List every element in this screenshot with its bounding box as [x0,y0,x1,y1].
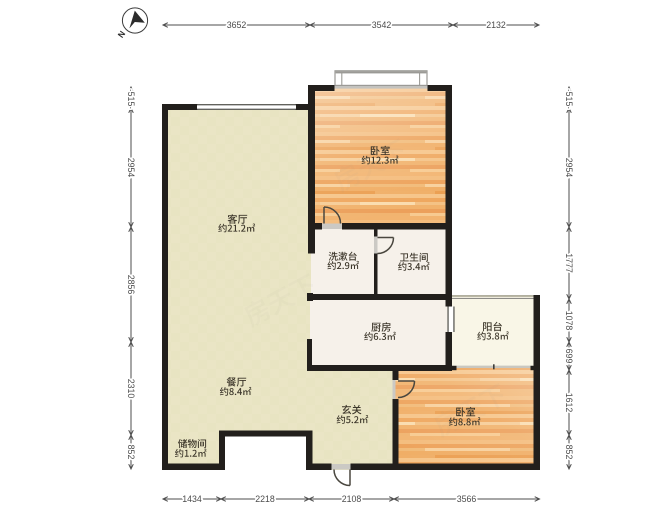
svg-text:1612: 1612 [564,393,574,413]
svg-text:·515·: ·515· [126,89,136,110]
svg-text:2132: 2132 [486,20,506,30]
svg-text:1078: 1078 [564,311,574,331]
svg-text:1777: 1777 [564,253,574,273]
svg-text:2954: 2954 [564,158,574,178]
svg-text:3566: 3566 [457,494,477,504]
svg-text:2954: 2954 [126,158,136,178]
svg-text:852: 852 [564,445,574,460]
svg-text:2108: 2108 [342,494,362,504]
svg-text:3542: 3542 [372,20,392,30]
svg-text:3652: 3652 [227,20,247,30]
svg-text:·515·: ·515· [564,89,574,110]
svg-text:1434: 1434 [182,494,202,504]
svg-text:2218: 2218 [255,494,275,504]
svg-text:699: 699 [564,349,574,364]
svg-text:2310: 2310 [126,379,136,399]
svg-text:2856: 2856 [126,275,136,295]
svg-text:852: 852 [126,445,136,460]
